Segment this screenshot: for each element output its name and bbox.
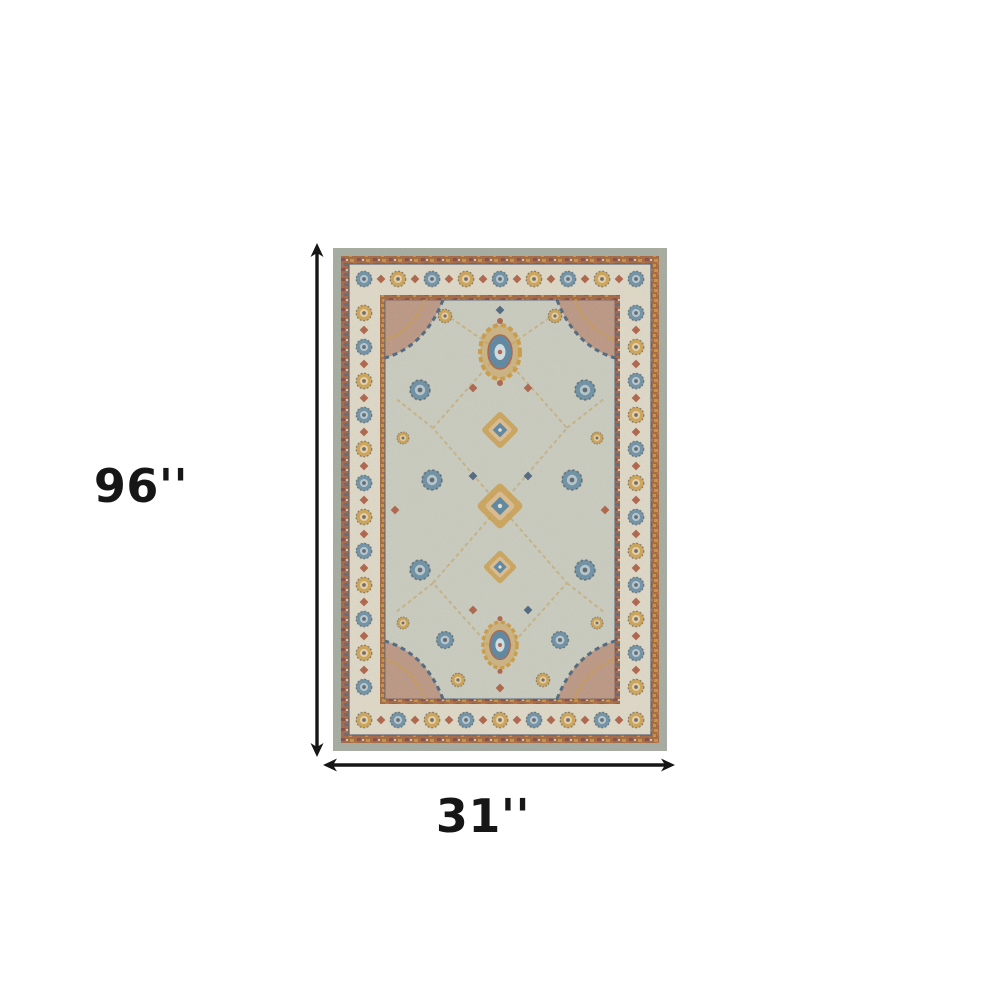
height-label: 96''	[86, 461, 196, 512]
rug-artwork	[333, 248, 667, 751]
width-label: 31''	[428, 791, 538, 842]
product-dimension-diagram: 96'' 31''	[0, 0, 1000, 1000]
width-dimension-arrow	[323, 756, 675, 774]
rug-image	[333, 248, 667, 751]
height-dimension-arrow	[308, 243, 326, 757]
